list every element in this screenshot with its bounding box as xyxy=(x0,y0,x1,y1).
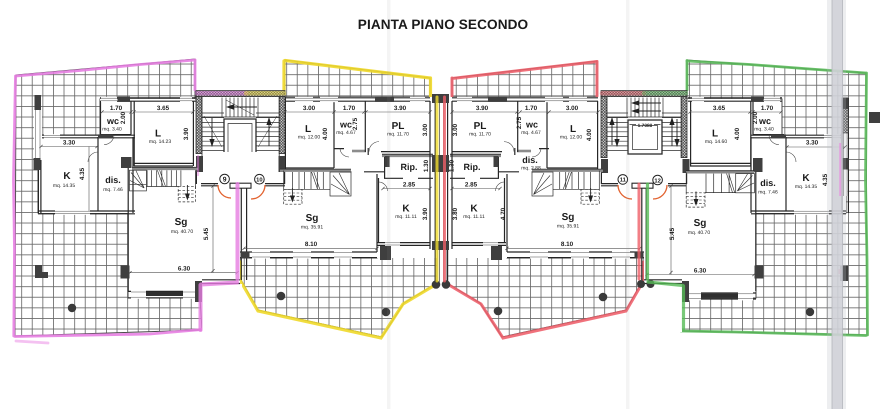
svg-text:3.90: 3.90 xyxy=(394,105,407,112)
svg-text:5.45: 5.45 xyxy=(203,227,210,240)
svg-text:wc: wc xyxy=(525,120,538,130)
svg-text:4.70: 4.70 xyxy=(500,207,507,220)
svg-text:K: K xyxy=(402,204,410,215)
svg-text:4.00: 4.00 xyxy=(586,128,593,141)
svg-text:mq. 14.60: mq. 14.60 xyxy=(705,139,727,145)
svg-text:mq. 12.00: mq. 12.00 xyxy=(560,135,582,141)
svg-text:1.70: 1.70 xyxy=(110,105,123,112)
svg-text:mq. 14.23: mq. 14.23 xyxy=(149,139,171,145)
svg-text:L: L xyxy=(305,124,311,135)
svg-text:3.00: 3.00 xyxy=(566,105,579,112)
svg-text:2.00: 2.00 xyxy=(752,111,759,124)
svg-text:1.70: 1.70 xyxy=(761,105,774,112)
svg-text:mq. 35.91: mq. 35.91 xyxy=(301,225,323,231)
svg-text:mq. 7.46: mq. 7.46 xyxy=(103,187,123,193)
svg-text:9: 9 xyxy=(223,177,227,184)
svg-text:2.85: 2.85 xyxy=(465,182,478,189)
svg-text:wc: wc xyxy=(758,116,771,126)
svg-text:K: K xyxy=(470,204,478,215)
svg-text:3.90: 3.90 xyxy=(422,207,429,220)
svg-text:8.10: 8.10 xyxy=(305,241,318,248)
svg-text:1.30: 1.30 xyxy=(449,159,456,172)
svg-text:PL: PL xyxy=(474,121,487,132)
svg-text:6.30: 6.30 xyxy=(694,268,707,275)
svg-text:1.70: 1.70 xyxy=(525,105,538,112)
svg-text:mq. 3.40: mq. 3.40 xyxy=(102,127,122,133)
svg-text:3.65: 3.65 xyxy=(157,105,170,112)
svg-text:3.00: 3.00 xyxy=(422,123,429,136)
svg-text:K: K xyxy=(802,173,810,184)
svg-text:mq. 14.35: mq. 14.35 xyxy=(795,184,817,190)
svg-text:3.30: 3.30 xyxy=(806,140,819,147)
svg-text:mq. 11.70: mq. 11.70 xyxy=(469,132,491,138)
svg-text:mq. 35.91: mq. 35.91 xyxy=(557,224,579,230)
svg-text:dis.: dis. xyxy=(760,178,776,188)
svg-text:K: K xyxy=(63,171,71,182)
svg-text:dis.: dis. xyxy=(522,155,538,165)
svg-text:mq. 2.88: mq. 2.88 xyxy=(521,166,541,172)
svg-text:4.00: 4.00 xyxy=(734,127,741,140)
svg-text:1.30: 1.30 xyxy=(423,159,430,172)
svg-text:PL: PL xyxy=(392,121,405,132)
svg-text:wc: wc xyxy=(339,120,352,130)
svg-text:Sg: Sg xyxy=(175,217,188,228)
svg-text:8.10: 8.10 xyxy=(561,241,574,248)
svg-text:4.00: 4.00 xyxy=(322,127,329,140)
svg-text:Sg: Sg xyxy=(562,212,575,223)
svg-text:wc: wc xyxy=(106,116,119,126)
svg-text:Rip.: Rip. xyxy=(401,162,418,172)
svg-text:10: 10 xyxy=(256,176,262,183)
svg-text:mq. 40.70: mq. 40.70 xyxy=(688,230,710,236)
svg-text:mq. 4.67: mq. 4.67 xyxy=(521,130,541,136)
svg-text:Rip.: Rip. xyxy=(464,162,481,172)
svg-text:PIANTA PIANO SECONDO: PIANTA PIANO SECONDO xyxy=(358,17,528,32)
svg-text:L: L xyxy=(155,129,161,140)
svg-text:12: 12 xyxy=(654,177,660,184)
svg-text:3.65: 3.65 xyxy=(713,105,726,112)
svg-text:3.30: 3.30 xyxy=(63,140,76,147)
svg-text:mq. 7.46: mq. 7.46 xyxy=(758,190,778,196)
svg-text:Sg: Sg xyxy=(306,213,319,224)
svg-text:3.00: 3.00 xyxy=(452,123,459,136)
svg-text:Sg: Sg xyxy=(694,218,707,229)
svg-text:2.75: 2.75 xyxy=(352,117,359,130)
svg-text:2.75: 2.75 xyxy=(516,116,523,129)
svg-text:1.70: 1.70 xyxy=(343,105,356,112)
svg-text:11: 11 xyxy=(620,178,627,184)
svg-text:mq. 40.70: mq. 40.70 xyxy=(171,229,193,235)
svg-text:3.80: 3.80 xyxy=(452,207,459,220)
svg-text:mq. 14.35: mq. 14.35 xyxy=(53,183,75,189)
svg-text:3.00: 3.00 xyxy=(303,105,316,112)
svg-text:2.85: 2.85 xyxy=(403,182,416,189)
svg-text:L: L xyxy=(570,124,576,135)
svg-text:mq. 4.67: mq. 4.67 xyxy=(336,130,356,136)
svg-text:6.30: 6.30 xyxy=(178,266,191,273)
svg-text:3.90: 3.90 xyxy=(183,127,190,140)
svg-text:3.90: 3.90 xyxy=(476,105,489,112)
svg-text:L: L xyxy=(712,129,718,140)
svg-text:mq. 12.00: mq. 12.00 xyxy=(298,135,320,141)
svg-text:mq. 3.40: mq. 3.40 xyxy=(754,127,774,133)
svg-text:4.35: 4.35 xyxy=(79,167,86,180)
svg-text:dis.: dis. xyxy=(105,175,121,185)
svg-text:mq. 11.11: mq. 11.11 xyxy=(463,214,485,220)
svg-text:2.00: 2.00 xyxy=(120,111,127,124)
svg-text:mq. 11.11: mq. 11.11 xyxy=(395,214,417,220)
svg-text:1.7080: 1.7080 xyxy=(638,123,653,129)
svg-text:5.45: 5.45 xyxy=(669,227,676,240)
